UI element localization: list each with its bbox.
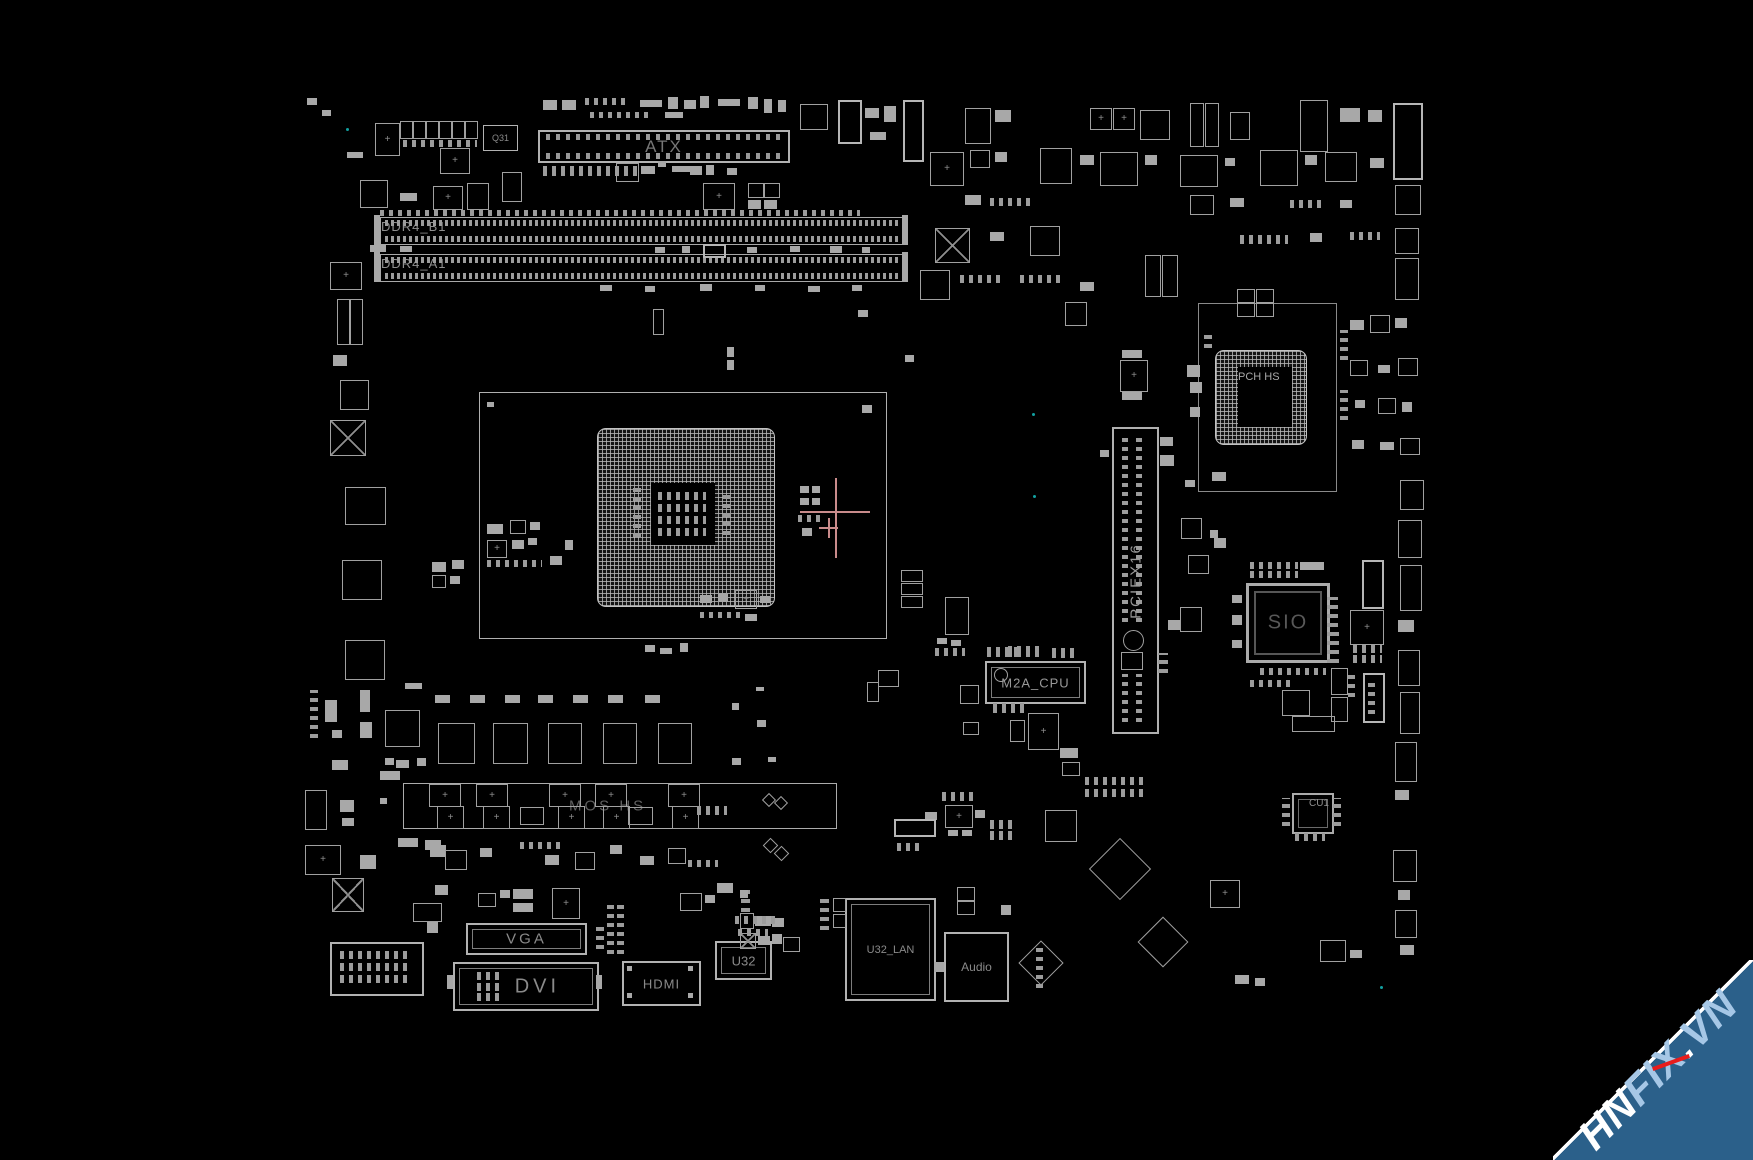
smd-pad	[1380, 442, 1394, 450]
smd-pad	[380, 771, 400, 780]
component-outline	[1010, 720, 1025, 742]
component-plus	[437, 806, 464, 829]
component-outline	[1188, 555, 1209, 574]
smd-pad	[1185, 480, 1195, 487]
smd-pad	[543, 100, 557, 110]
component-outline	[350, 299, 363, 345]
smd-pad	[396, 760, 409, 768]
pad-row	[1290, 200, 1326, 208]
component-outline	[628, 807, 653, 825]
smd-pad	[1212, 472, 1226, 481]
smd-pad	[757, 720, 766, 727]
smd-pad	[380, 798, 387, 804]
smd-pad	[790, 246, 800, 252]
smd-pad	[627, 966, 632, 971]
crossed-component	[332, 878, 364, 912]
smd-pad	[1100, 450, 1109, 457]
component-outline	[1162, 255, 1178, 297]
smd-pad	[778, 100, 786, 112]
component-outline	[1400, 438, 1420, 455]
pad-row	[798, 515, 822, 522]
component-outline	[1030, 226, 1060, 256]
component-outline	[901, 596, 923, 608]
connector-outline	[894, 819, 936, 837]
component-outline	[548, 723, 582, 764]
component-outline	[1062, 762, 1080, 776]
component-outline	[1190, 103, 1204, 147]
circle-pad	[1123, 630, 1144, 651]
pad-row	[477, 983, 503, 991]
pad-row	[1085, 789, 1147, 797]
pad-row	[990, 820, 1014, 829]
smd-pad	[398, 838, 418, 847]
pad-row	[1052, 648, 1078, 658]
component-plus	[429, 784, 461, 807]
boardview-canvas: Q31 ATX DDR4_B1 DDR4_A1 PCIEX16 PCH HS S…	[0, 0, 1753, 1160]
smd-pad	[1225, 158, 1235, 166]
pad-row	[403, 140, 477, 147]
smd-pad	[1402, 402, 1412, 412]
smd-pad	[452, 560, 464, 569]
component-plus	[375, 123, 400, 156]
smd-pad	[505, 695, 520, 703]
component-plus	[487, 540, 507, 558]
component-outline	[1121, 652, 1143, 670]
smd-pad	[862, 247, 870, 253]
pad-column	[617, 902, 624, 954]
smd-pad	[385, 758, 394, 765]
pad-column	[633, 487, 641, 537]
component-outline	[603, 723, 637, 764]
smd-pad	[727, 168, 737, 175]
smd-pad	[690, 168, 702, 175]
net-dot	[346, 128, 349, 131]
smd-pad	[772, 934, 782, 944]
smd-pad	[405, 683, 422, 689]
u32-lan-label: U32_LAN	[867, 944, 915, 956]
pad-column	[1333, 798, 1341, 826]
smd-pad	[435, 695, 450, 703]
smd-pad	[545, 855, 559, 865]
component-outline	[1100, 152, 1138, 186]
smd-pad	[374, 215, 380, 245]
smd-pad	[1122, 392, 1142, 400]
net-dot	[1380, 986, 1383, 989]
connector-outline	[903, 100, 924, 162]
smd-pad	[370, 245, 386, 252]
super-io-chip[interactable]: SIO	[1246, 583, 1330, 663]
usb32-lan-stack[interactable]: U32_LAN	[845, 898, 936, 1001]
smd-pad	[528, 538, 537, 545]
smd-pad	[512, 540, 524, 549]
smd-pad	[1350, 950, 1362, 958]
component-outline	[867, 682, 879, 702]
smd-pad	[865, 108, 879, 118]
smd-pad	[538, 695, 553, 703]
audio-label: Audio	[961, 960, 992, 974]
pad-column	[1122, 674, 1128, 722]
smd-pad	[975, 810, 985, 818]
smd-pad	[747, 247, 757, 253]
chip-cu1[interactable]: CU1	[1292, 793, 1334, 834]
smd-pad	[1350, 320, 1364, 330]
component-outline	[800, 104, 828, 130]
smd-pad	[400, 246, 412, 252]
smd-pad	[1398, 890, 1410, 900]
crossed-component	[330, 420, 366, 456]
smd-pad	[417, 758, 426, 766]
component-outline	[1256, 303, 1274, 317]
smd-pad	[530, 522, 540, 530]
smd-pad	[1190, 407, 1200, 417]
smd-pad	[905, 355, 914, 362]
component-outline	[1292, 716, 1335, 732]
pch-label: PCH HS	[1238, 371, 1280, 383]
atx-label: ATX	[645, 137, 683, 157]
smd-pad	[322, 110, 331, 116]
net-dot	[1033, 495, 1036, 498]
component-plus	[483, 806, 510, 829]
smd-pad	[748, 97, 758, 109]
component-outline	[1256, 289, 1274, 303]
smd-pad	[562, 100, 576, 110]
audio-jack-stack[interactable]: Audio	[944, 932, 1009, 1002]
component-outline	[467, 183, 489, 210]
component-outline	[920, 270, 950, 300]
pad-column	[1158, 653, 1168, 673]
smd-pad	[1187, 365, 1200, 377]
component-outline	[833, 914, 846, 928]
smd-pad	[1210, 530, 1218, 538]
smd-pad	[432, 562, 446, 572]
smd-pad	[990, 232, 1004, 241]
smd-pad	[727, 347, 734, 357]
component-outline	[439, 121, 452, 139]
component-plus	[1210, 880, 1240, 908]
component-outline	[1190, 195, 1214, 215]
component-outline	[963, 722, 979, 735]
circle-pad	[994, 668, 1008, 682]
smd-pad	[934, 962, 944, 972]
pad-row	[340, 975, 410, 983]
smd-pad	[682, 246, 690, 253]
smd-pad	[732, 703, 739, 710]
pad-column	[1327, 630, 1339, 663]
component-outline	[1145, 255, 1161, 297]
smd-pad	[1214, 538, 1226, 548]
component-plus	[440, 148, 470, 174]
component-outline	[833, 898, 846, 912]
component-outline	[1378, 398, 1396, 414]
pad-row	[1260, 668, 1326, 675]
smd-pad	[640, 856, 654, 865]
component-q31[interactable]: Q31	[483, 125, 518, 151]
cu1-label: CU1	[1309, 798, 1329, 809]
smd-pad	[962, 830, 972, 836]
component-outline	[616, 163, 639, 182]
smd-pad	[447, 975, 453, 989]
pad-column	[1340, 390, 1348, 420]
component-outline	[432, 575, 446, 588]
diamond-component	[1089, 838, 1151, 900]
vga-label: VGA	[506, 931, 547, 948]
smd-pad	[400, 193, 417, 201]
smd-pad	[800, 486, 809, 493]
component-outline	[1237, 289, 1255, 303]
smd-pad	[1080, 282, 1094, 291]
smd-pad	[1395, 318, 1407, 328]
component-outline	[1398, 650, 1420, 686]
smd-pad	[1300, 562, 1324, 570]
smd-pad	[487, 402, 494, 407]
smd-pad	[333, 355, 347, 366]
dvi-port[interactable]: DVI	[453, 962, 599, 1011]
smd-pad	[1230, 198, 1244, 207]
smd-pad	[764, 99, 772, 113]
component-outline	[901, 583, 923, 595]
component-outline	[1395, 185, 1421, 215]
component-plus	[668, 784, 700, 807]
smd-pad	[1352, 440, 1364, 449]
smd-pad	[684, 100, 696, 109]
component-outline	[680, 893, 702, 911]
smd-pad	[902, 252, 908, 282]
smd-pad	[596, 975, 602, 989]
hdmi-label: HDMI	[643, 976, 680, 991]
component-outline	[957, 887, 975, 901]
dimm-slot-ddr4-a1[interactable]: DDR4_A1	[380, 254, 904, 282]
connector-outline	[1393, 103, 1423, 180]
pad-column	[1340, 330, 1348, 360]
diamond-component	[774, 846, 790, 862]
component-outline	[901, 570, 923, 582]
component-outline	[445, 850, 467, 870]
component-outline	[1140, 110, 1170, 140]
component-outline	[653, 309, 664, 335]
component-outline	[502, 172, 522, 202]
smd-pad	[884, 106, 896, 122]
pad-row	[477, 993, 503, 1001]
pad-column	[1327, 597, 1338, 627]
smd-pad	[342, 818, 354, 826]
component-plus	[672, 806, 699, 829]
component-plus	[1090, 108, 1112, 130]
connector-outline	[1362, 560, 1384, 609]
component-outline	[1331, 668, 1348, 695]
component-outline	[970, 150, 990, 168]
smd-pad	[745, 614, 757, 621]
smd-pad	[812, 498, 820, 505]
smd-pad	[640, 100, 662, 107]
connector-outline	[703, 244, 726, 258]
component-outline	[1282, 690, 1310, 716]
atx-power-connector[interactable]: ATX	[538, 130, 790, 163]
component-outline	[1045, 810, 1077, 842]
pad-column	[1136, 674, 1142, 722]
component-outline	[1230, 112, 1250, 140]
smd-pad	[680, 643, 688, 652]
component-plus	[1350, 610, 1384, 645]
pad-row	[688, 860, 718, 867]
pad-row	[1008, 646, 1042, 657]
component-plus	[595, 784, 627, 807]
component-plus	[945, 805, 973, 828]
diamond-component	[1138, 917, 1189, 968]
component-plus	[305, 845, 341, 875]
pad-column	[820, 896, 829, 930]
component-outline	[1181, 518, 1202, 539]
pad-row	[520, 842, 560, 849]
connector-outline	[838, 100, 862, 144]
component-plus	[476, 784, 508, 807]
component-outline	[878, 670, 899, 687]
smd-pad	[764, 200, 777, 209]
smd-pad	[1232, 640, 1242, 648]
component-outline	[360, 180, 388, 208]
pad-row	[990, 198, 1030, 206]
component-outline	[520, 807, 544, 825]
pad-row	[735, 916, 775, 924]
smd-pad	[332, 730, 342, 738]
pad-column	[1368, 678, 1375, 714]
smd-pad	[1235, 975, 1249, 984]
m2a-cpu-label: M2A_CPU	[1001, 675, 1069, 690]
component-outline	[1395, 258, 1419, 300]
component-plus	[1113, 108, 1135, 130]
component-outline	[965, 108, 991, 144]
component-plus	[330, 262, 362, 290]
smd-pad	[610, 845, 622, 854]
component-plus	[558, 806, 585, 829]
component-outline	[1350, 360, 1368, 376]
pad-row	[1240, 235, 1288, 244]
smd-pad	[1395, 790, 1409, 800]
smd-pad	[513, 889, 533, 899]
pad-column	[596, 927, 604, 949]
smd-pad	[450, 576, 460, 584]
smd-pad	[862, 405, 872, 413]
smd-pad	[870, 132, 886, 140]
smd-pad	[1190, 382, 1202, 393]
pad-row	[960, 275, 1005, 283]
component-plus	[552, 888, 580, 919]
smd-pad	[948, 830, 958, 836]
pad-column	[1122, 437, 1128, 622]
smd-pad	[802, 528, 812, 536]
smd-pad	[500, 890, 510, 898]
pad-row	[585, 98, 625, 105]
smd-pad	[347, 152, 363, 158]
smd-pad	[307, 98, 317, 105]
component-outline	[1300, 100, 1328, 152]
smd-pad	[645, 645, 655, 652]
smd-pad	[858, 310, 868, 317]
smd-pad	[665, 112, 683, 118]
pad-row	[487, 560, 542, 567]
crosshair-line	[835, 478, 837, 558]
pad-row	[1295, 833, 1325, 841]
smd-pad	[1232, 615, 1242, 625]
smd-pad	[645, 286, 655, 292]
vga-port[interactable]: VGA	[466, 923, 587, 955]
component-outline	[1040, 148, 1072, 184]
component-outline	[1398, 520, 1422, 558]
smd-pad	[995, 110, 1011, 122]
component-plus	[433, 186, 463, 210]
smd-pad	[1255, 978, 1265, 986]
pch-chip-center: PCH HS	[1238, 367, 1292, 427]
component-outline	[426, 121, 439, 139]
smd-pad	[756, 687, 764, 691]
smd-pad	[480, 848, 492, 857]
smd-pad	[1310, 233, 1322, 242]
smd-pad	[332, 760, 348, 770]
component-outline	[1370, 315, 1390, 333]
smd-pad	[1160, 455, 1174, 466]
smd-pad	[1168, 620, 1180, 630]
smd-pad	[425, 840, 441, 850]
pad-column	[1204, 330, 1212, 348]
pad-row	[1085, 777, 1147, 785]
component-outline	[1205, 103, 1219, 147]
pad-row	[658, 504, 706, 512]
crossed-component	[935, 228, 970, 263]
component-plus	[930, 152, 964, 186]
component-outline	[1180, 607, 1202, 632]
component-outline	[438, 723, 475, 764]
component-outline	[305, 790, 327, 830]
component-outline	[340, 380, 369, 410]
pad-row	[897, 843, 924, 851]
pad-row	[340, 951, 410, 959]
component-outline	[510, 520, 526, 534]
smd-pad	[513, 903, 533, 912]
component-outline	[960, 685, 979, 704]
smd-pad	[937, 638, 947, 644]
smd-pad	[427, 922, 438, 933]
crosshair-line	[800, 511, 870, 513]
smd-pad	[1340, 200, 1352, 208]
pad-row	[697, 806, 727, 815]
smd-pad	[965, 195, 981, 205]
component-outline	[658, 723, 692, 764]
component-outline	[1065, 302, 1087, 326]
smd-pad	[688, 993, 693, 998]
smd-pad	[668, 97, 678, 109]
smd-pad	[487, 524, 503, 534]
smd-pad	[758, 936, 770, 945]
dimm-slot-ddr4-b1[interactable]: DDR4_B1	[380, 217, 904, 245]
pad-row	[993, 703, 1025, 713]
pad-column	[607, 902, 614, 954]
component-outline	[342, 560, 382, 600]
pad-column	[723, 490, 731, 535]
component-outline	[957, 901, 975, 915]
smd-pad	[755, 285, 765, 291]
u32-label: U32	[732, 953, 756, 968]
component-outline	[1395, 228, 1419, 254]
smd-pad	[1398, 620, 1414, 632]
component-outline	[1398, 358, 1418, 376]
smd-pad	[760, 596, 770, 603]
component-outline	[1180, 155, 1218, 187]
component-outline	[1393, 850, 1417, 882]
smd-pad	[688, 966, 693, 971]
pad-row	[590, 112, 650, 118]
smd-pad	[565, 540, 573, 550]
smd-pad	[902, 215, 908, 245]
smd-pad	[645, 695, 660, 703]
